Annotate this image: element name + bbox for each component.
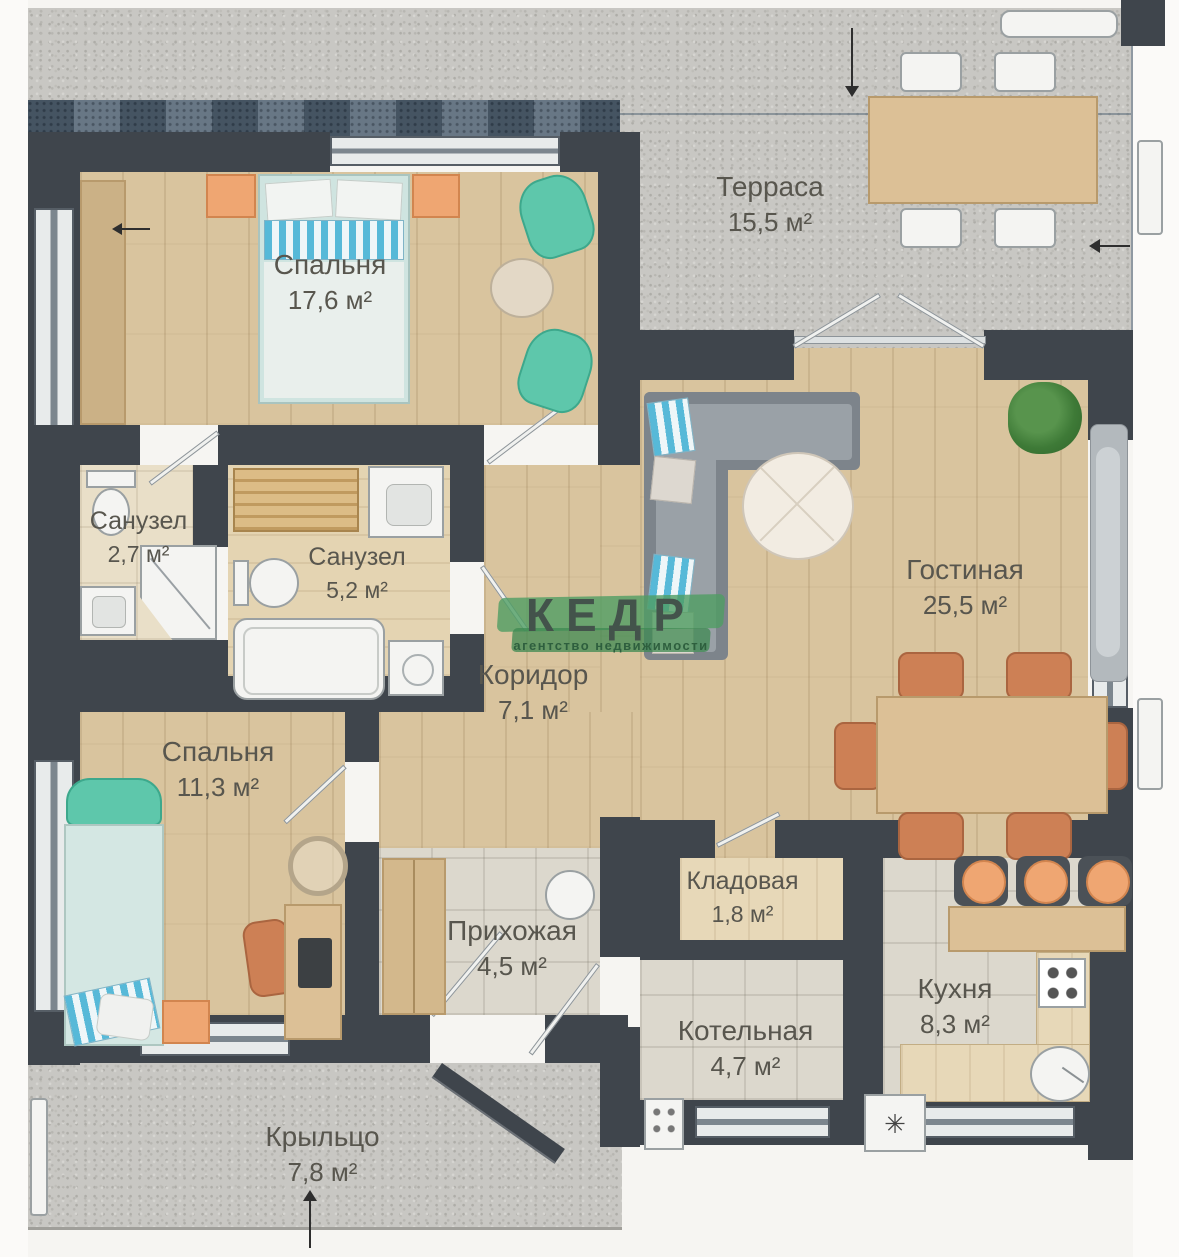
window-boiler bbox=[695, 1106, 830, 1138]
wall bbox=[28, 640, 228, 712]
terrace-table bbox=[868, 96, 1098, 204]
room-area: 4,7 м² bbox=[658, 1051, 833, 1083]
room-area: 15,5 м² bbox=[670, 207, 870, 239]
room-name: Санузел bbox=[66, 506, 211, 537]
nightstand bbox=[162, 1000, 210, 1044]
room-area: 11,3 м² bbox=[138, 772, 298, 804]
entrance-arrow-head bbox=[845, 86, 859, 97]
sofa-pillow bbox=[646, 397, 695, 456]
window-sill-right-1 bbox=[1137, 140, 1163, 235]
room-name: Кладовая bbox=[665, 866, 820, 897]
room-label-bathroom-small: Санузел 2,7 м² bbox=[66, 506, 211, 568]
porch-side-sill bbox=[30, 1098, 48, 1216]
room-name: Коридор bbox=[458, 658, 608, 692]
nightstand bbox=[206, 174, 256, 218]
window-bedroom-main-left bbox=[34, 208, 74, 432]
console-top bbox=[1096, 447, 1120, 657]
wall bbox=[345, 712, 379, 762]
room-name: Крыльцо bbox=[240, 1120, 405, 1154]
pouf bbox=[545, 870, 595, 920]
terrace-arrow bbox=[1100, 245, 1130, 247]
washer-door bbox=[402, 654, 434, 686]
bar-stool bbox=[1024, 860, 1068, 904]
snowflake-icon: ✳ bbox=[884, 1109, 906, 1139]
shower-door-line bbox=[150, 558, 211, 630]
pillow bbox=[335, 179, 403, 220]
room-area: 25,5 м² bbox=[885, 590, 1045, 622]
side-table bbox=[490, 258, 554, 318]
nightstand bbox=[412, 174, 460, 218]
room-label-boiler-room: Котельная 4,7 м² bbox=[658, 1014, 833, 1083]
wall bbox=[598, 132, 640, 465]
room-label-bedroom-main: Спальня 17,6 м² bbox=[230, 248, 430, 317]
sink bbox=[368, 466, 444, 538]
kitchen-sink bbox=[1030, 1046, 1090, 1102]
terrace-chair bbox=[900, 208, 962, 248]
toilet-tank bbox=[233, 560, 249, 606]
room-label-corridor: Коридор 7,1 м² bbox=[458, 658, 608, 727]
bar-stool bbox=[962, 860, 1006, 904]
terrace-chair bbox=[900, 52, 962, 92]
sun-lounger bbox=[1000, 10, 1118, 38]
room-label-bathroom-large: Санузел 5,2 м² bbox=[287, 542, 427, 604]
wall bbox=[345, 842, 379, 1017]
wall bbox=[450, 465, 484, 562]
room-label-storage: Кладовая 1,8 м² bbox=[665, 866, 820, 928]
terrace-door-sill bbox=[794, 336, 986, 344]
room-label-kitchen: Кухня 8,3 м² bbox=[880, 972, 1030, 1041]
room-label-hallway: Прихожая 4,5 м² bbox=[432, 914, 592, 983]
room-area: 5,2 м² bbox=[287, 576, 427, 604]
room-name: Котельная bbox=[658, 1014, 833, 1048]
window-bedroom-main-top bbox=[330, 136, 560, 166]
room-label-porch: Крыльцо 7,8 м² bbox=[240, 1120, 405, 1189]
room-name: Санузел bbox=[287, 542, 427, 573]
room-name: Спальня bbox=[230, 248, 430, 282]
room-name: Терраса bbox=[670, 170, 870, 204]
sink bbox=[80, 586, 136, 636]
wall bbox=[218, 425, 484, 465]
dining-chair bbox=[898, 812, 964, 860]
dining-chair bbox=[1006, 812, 1072, 860]
toilet-tank bbox=[86, 470, 136, 488]
sauna-bench bbox=[233, 468, 359, 532]
stove bbox=[1038, 958, 1086, 1008]
room-area: 17,6 м² bbox=[230, 285, 430, 317]
room-label-bedroom-second: Спальня 11,3 м² bbox=[138, 735, 298, 804]
coffee-table bbox=[742, 452, 854, 560]
sofa-pillow bbox=[650, 456, 696, 504]
room-name: Кухня bbox=[880, 972, 1030, 1006]
side-arrow-head bbox=[112, 223, 122, 235]
window-kitchen bbox=[900, 1106, 1075, 1138]
laptop bbox=[298, 938, 332, 988]
watermark-subtitle: агентство недвижимости bbox=[498, 638, 724, 653]
watermark: КЕДР агентство недвижимости bbox=[498, 588, 724, 653]
pillow bbox=[95, 992, 154, 1041]
side-arrow bbox=[122, 228, 150, 230]
wall bbox=[843, 858, 883, 1110]
console-cabinet bbox=[1090, 424, 1128, 682]
entrance-arrow bbox=[851, 28, 853, 86]
dining-table bbox=[876, 696, 1108, 814]
room-area: 8,3 м² bbox=[880, 1009, 1030, 1041]
bar-stool bbox=[1086, 860, 1130, 904]
room-area: 1,8 м² bbox=[665, 900, 820, 928]
porch-arrow-head bbox=[303, 1190, 317, 1201]
room-area: 7,8 м² bbox=[240, 1157, 405, 1189]
round-rug bbox=[288, 836, 348, 896]
porch-arrow bbox=[309, 1200, 311, 1248]
room-label-terrace: Терраса 15,5 м² bbox=[670, 170, 870, 239]
room-area: 7,1 м² bbox=[458, 695, 608, 727]
wall bbox=[600, 820, 715, 858]
single-bed bbox=[64, 824, 164, 1046]
terrace-chair bbox=[994, 52, 1056, 92]
wall bbox=[28, 425, 140, 465]
window-sill-right-2 bbox=[1137, 698, 1163, 790]
floor-plan: ✳ Терраса 15,5 м² Спальня 17,6 м² Санузе… bbox=[0, 0, 1179, 1257]
sink-basin bbox=[386, 484, 432, 526]
pillow bbox=[265, 179, 333, 222]
room-name: Спальня bbox=[138, 735, 298, 769]
room-area: 4,5 м² bbox=[432, 951, 592, 983]
bathtub bbox=[233, 618, 385, 700]
boiler bbox=[644, 1098, 684, 1150]
sink-basin bbox=[92, 596, 126, 628]
watermark-brand: КЕДР bbox=[498, 588, 724, 642]
room-area: 2,7 м² bbox=[66, 540, 211, 568]
fridge: ✳ bbox=[864, 1094, 926, 1152]
left-margin bbox=[0, 0, 28, 1257]
dining-chair bbox=[834, 722, 882, 790]
faucet bbox=[1062, 1067, 1084, 1084]
bathtub-inner bbox=[243, 627, 379, 695]
dining-chair bbox=[1006, 652, 1072, 700]
desk bbox=[284, 904, 342, 1040]
dining-chair bbox=[898, 652, 964, 700]
washing-machine bbox=[388, 640, 444, 696]
terrace-arrow-head bbox=[1089, 239, 1100, 253]
bar-counter bbox=[948, 906, 1126, 952]
terrace-chair bbox=[994, 208, 1056, 248]
room-label-living-room: Гостиная 25,5 м² bbox=[885, 553, 1045, 622]
corner-wall-block bbox=[1121, 0, 1165, 46]
room-name: Прихожая bbox=[432, 914, 592, 948]
wall bbox=[620, 330, 794, 380]
wardrobe bbox=[80, 180, 126, 425]
room-name: Гостиная bbox=[885, 553, 1045, 587]
